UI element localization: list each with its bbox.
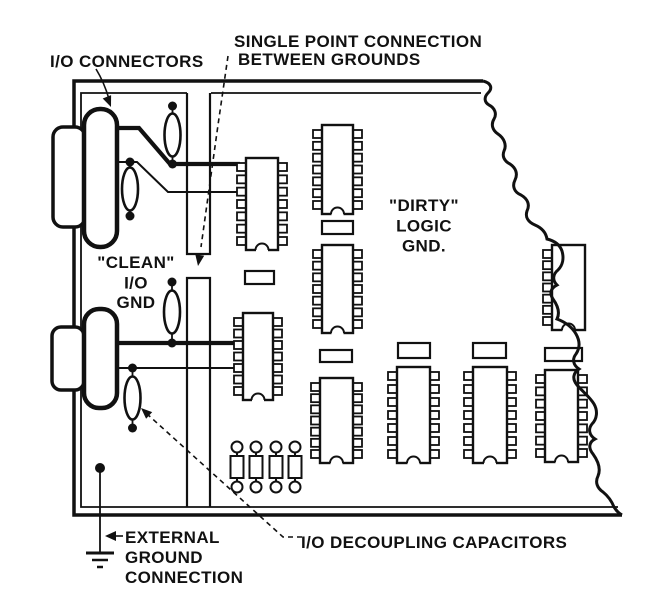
ic-pin <box>464 437 473 445</box>
io-connector-top <box>53 109 117 247</box>
ic-pin <box>430 437 439 445</box>
ic-pin <box>313 250 322 258</box>
ic-body <box>397 367 430 463</box>
ic-pin <box>237 200 246 208</box>
ic-pin <box>313 297 322 305</box>
solder-dot <box>168 102 177 111</box>
ic-pin <box>278 188 287 196</box>
ic-pin <box>313 154 322 162</box>
ic-pin <box>311 439 320 447</box>
ic-pin <box>536 412 545 420</box>
single-point-label-line2: BETWEEN GROUNDS <box>238 50 421 69</box>
dirty-gnd-label-line1: "DIRTY" <box>389 196 459 215</box>
ic-pin <box>507 385 516 393</box>
ic-pin <box>311 417 320 425</box>
ic-pin <box>273 353 282 361</box>
ic-pin <box>388 450 397 458</box>
passive-rect <box>320 350 352 362</box>
ic-pin <box>234 341 243 349</box>
ic-pin <box>430 411 439 419</box>
ic-pin <box>578 437 587 445</box>
solder-dot <box>168 339 177 348</box>
ic-notch <box>331 208 344 215</box>
external-ground-label-line3: CONNECTION <box>125 568 243 587</box>
ic-pin <box>311 428 320 436</box>
axial-capacitor <box>231 442 244 493</box>
ic-pin <box>507 398 516 406</box>
ic-pin <box>273 330 282 338</box>
axial-cap-body <box>250 456 263 478</box>
decoupling-caps-label: I/O DECOUPLING CAPACITORS <box>301 533 567 552</box>
ic-pin <box>237 163 246 171</box>
ic-pin <box>278 163 287 171</box>
ic-pin <box>507 372 516 380</box>
ic-pin <box>313 189 322 197</box>
ic-pin <box>353 308 362 316</box>
passive-rect <box>473 343 506 358</box>
ic-pin <box>237 188 246 196</box>
ic-pin <box>578 449 587 457</box>
ic-pin <box>578 400 587 408</box>
solder-dot <box>126 158 135 167</box>
ic-pin <box>430 385 439 393</box>
ic-pin <box>353 177 362 185</box>
ic-pin <box>353 405 362 413</box>
dirty-gnd-label-line3: GND. <box>402 237 446 256</box>
ic-pin <box>536 375 545 383</box>
ic-notch <box>407 457 420 463</box>
ic-pin <box>430 398 439 406</box>
ic-pin <box>353 394 362 402</box>
clean-gnd-label-line2: I/O <box>124 274 148 293</box>
ic-pin <box>353 142 362 150</box>
ic-pin <box>430 372 439 380</box>
ic-pin <box>536 387 545 395</box>
ic-pin <box>464 424 473 432</box>
ic-pin <box>543 250 552 258</box>
ic-body <box>473 367 507 463</box>
axial-cap-pad-top <box>290 442 301 453</box>
ic-pin <box>464 411 473 419</box>
ic-body <box>246 158 278 250</box>
passive-rect <box>245 271 274 284</box>
ic-pin <box>388 411 397 419</box>
ic-pin <box>234 353 243 361</box>
io-connector-top-outer <box>53 127 85 227</box>
ic-pin <box>388 398 397 406</box>
ic-pin <box>353 439 362 447</box>
ic-pin <box>464 450 473 458</box>
ic-body <box>322 245 353 333</box>
solder-dot <box>126 212 135 221</box>
ic-notch <box>252 394 265 401</box>
ic-pin <box>353 417 362 425</box>
ic-pin <box>464 398 473 406</box>
ic-pin <box>543 306 552 314</box>
ic-pin <box>388 424 397 432</box>
ic-pin <box>353 273 362 281</box>
axial-cap-pad-top <box>271 442 282 453</box>
ic-pin <box>388 437 397 445</box>
ic-pin <box>353 130 362 138</box>
io-connectors-label: I/O CONNECTORS <box>50 52 204 71</box>
ic-pin <box>543 261 552 269</box>
ic-pin <box>353 297 362 305</box>
ic-pin <box>313 320 322 328</box>
clean-gnd-label-line3: GND <box>117 293 156 312</box>
axial-cap-pad-bottom <box>251 482 262 493</box>
axial-cap-pad-top <box>232 442 243 453</box>
axial-cap-pad-bottom <box>290 482 301 493</box>
ic-pin <box>543 317 552 325</box>
ic-pin <box>536 424 545 432</box>
ic-pin <box>234 364 243 372</box>
ic-pin <box>273 318 282 326</box>
dip-ic <box>313 125 362 216</box>
ic-pin <box>313 177 322 185</box>
ic-pin <box>536 437 545 445</box>
ic-pin <box>543 272 552 280</box>
solder-dot <box>128 364 137 373</box>
ic-pin <box>311 383 320 391</box>
ic-pin <box>313 201 322 209</box>
ic-pin <box>464 372 473 380</box>
ic-pin <box>313 273 322 281</box>
ic-pin <box>536 400 545 408</box>
cap-body <box>125 377 141 420</box>
ic-pin <box>311 405 320 413</box>
ic-pin <box>353 189 362 197</box>
ic-pin <box>578 424 587 432</box>
ic-pin <box>578 375 587 383</box>
ic-pin <box>273 364 282 372</box>
ic-notch <box>256 244 269 250</box>
ic-pin <box>313 130 322 138</box>
axial-cap-body <box>270 456 283 478</box>
ic-pin <box>353 262 362 270</box>
ic-pin <box>278 175 287 183</box>
ic-pin <box>353 450 362 458</box>
ic-notch <box>331 327 344 334</box>
solder-dot <box>168 278 177 287</box>
ic-pin <box>430 450 439 458</box>
ic-pin <box>278 212 287 220</box>
ic-pin <box>313 262 322 270</box>
axial-capacitor <box>270 442 283 493</box>
ic-pin <box>278 237 287 245</box>
ic-pin <box>237 212 246 220</box>
ic-pin <box>234 387 243 395</box>
axial-cap-body <box>289 456 302 478</box>
ic-pin <box>353 166 362 174</box>
ic-body <box>322 125 353 214</box>
dirty-gnd-label-line2: LOGIC <box>396 217 452 236</box>
ic-pin <box>234 330 243 338</box>
ic-notch <box>484 457 497 463</box>
ic-pin <box>234 376 243 384</box>
io-connector-top-shell <box>84 109 117 247</box>
ic-pin <box>234 318 243 326</box>
ic-pin <box>353 154 362 162</box>
ic-pin <box>388 385 397 393</box>
ic-pin <box>313 308 322 316</box>
dip-ic <box>313 245 362 335</box>
ic-pin <box>311 394 320 402</box>
ic-pin <box>313 285 322 293</box>
clean-gnd-label-line1: "CLEAN" <box>97 253 174 272</box>
ic-pin <box>278 200 287 208</box>
solder-dot <box>128 424 137 433</box>
solder-dot <box>168 160 177 169</box>
cap-body <box>165 114 181 157</box>
single-point-label-line1: SINGLE POINT CONNECTION <box>234 32 482 51</box>
io-connector-bottom-shell <box>84 309 117 408</box>
dip-ic <box>234 313 282 402</box>
ic-pin <box>388 372 397 380</box>
ic-pin <box>353 250 362 258</box>
grounding-diagram: I/O CONNECTORS SINGLE POINT CONNECTION B… <box>0 0 646 597</box>
dip-ic <box>311 378 362 465</box>
ic-pin <box>313 142 322 150</box>
ic-pin <box>278 225 287 233</box>
ic-pin <box>237 237 246 245</box>
io-connector-bottom-outer <box>52 327 84 390</box>
ic-pin <box>313 166 322 174</box>
passive-rect <box>322 221 353 234</box>
ic-body <box>545 370 578 462</box>
external-ground-label-line2: GROUND <box>125 548 203 567</box>
ic-pin <box>237 175 246 183</box>
axial-cap-pad-top <box>251 442 262 453</box>
ic-pin <box>536 449 545 457</box>
cap-body <box>122 168 138 211</box>
axial-capacitor <box>250 442 263 493</box>
ic-pin <box>273 376 282 384</box>
ic-pin <box>353 383 362 391</box>
ic-pin <box>273 341 282 349</box>
cap-body <box>164 291 180 334</box>
ic-pin <box>353 320 362 328</box>
external-ground-label-line1: EXTERNAL <box>125 528 220 547</box>
ic-body <box>243 313 273 400</box>
ic-pin <box>507 424 516 432</box>
ic-pin <box>430 424 439 432</box>
ic-pin <box>507 450 516 458</box>
ic-pin <box>311 450 320 458</box>
axial-cap-pad-bottom <box>271 482 282 493</box>
ic-pin <box>353 285 362 293</box>
ic-notch <box>330 457 343 463</box>
ic-pin <box>507 411 516 419</box>
ic-pin <box>237 225 246 233</box>
ic-pin <box>464 385 473 393</box>
axial-capacitor <box>289 442 302 493</box>
ic-pin <box>353 428 362 436</box>
ic-pin <box>507 437 516 445</box>
ic-notch <box>555 456 568 462</box>
axial-cap-pad-bottom <box>232 482 243 493</box>
ic-body <box>320 378 353 463</box>
ic-pin <box>273 387 282 395</box>
axial-cap-body <box>231 456 244 478</box>
ic-pin <box>578 412 587 420</box>
passive-rect <box>398 343 430 358</box>
ic-pin <box>353 201 362 209</box>
